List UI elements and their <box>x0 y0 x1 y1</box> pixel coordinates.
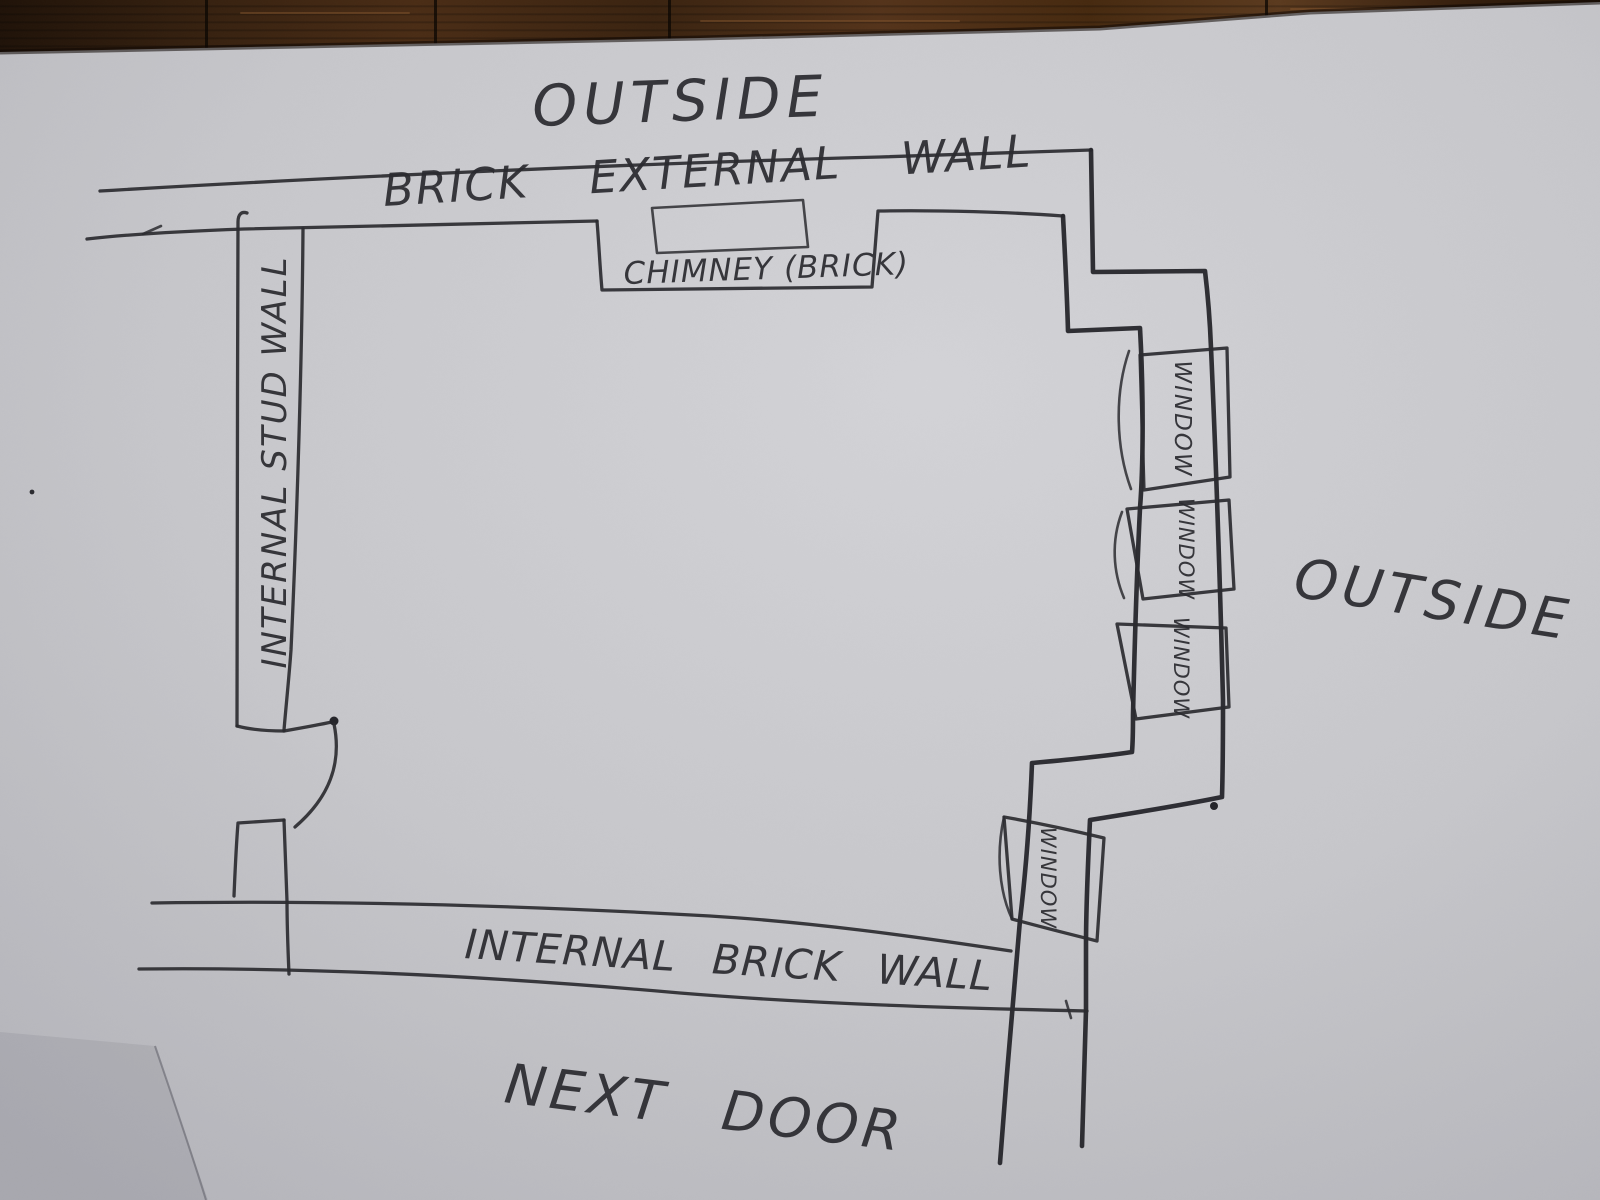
label-window-2: WINDOW <box>1174 498 1198 600</box>
label-window-4: WINDOW <box>1036 827 1060 929</box>
photo-of-floor-plan-sketch: { "labels": { "outside_top": "OUTSIDE", … <box>0 0 1600 1200</box>
label-window-1: WINDOW <box>1169 360 1195 477</box>
label-window-3: WINDOW <box>1169 617 1193 719</box>
label-outside-top: OUTSIDE <box>531 64 829 140</box>
floor-plan-sketch: OUTSIDE BRICK EXTERNAL WALL CHIMNEY (BRI… <box>0 0 1600 1200</box>
ink-speck <box>30 490 35 495</box>
pen-dot <box>1210 802 1218 810</box>
label-internal-stud-wall: INTERNAL STUD WALL <box>255 255 295 668</box>
